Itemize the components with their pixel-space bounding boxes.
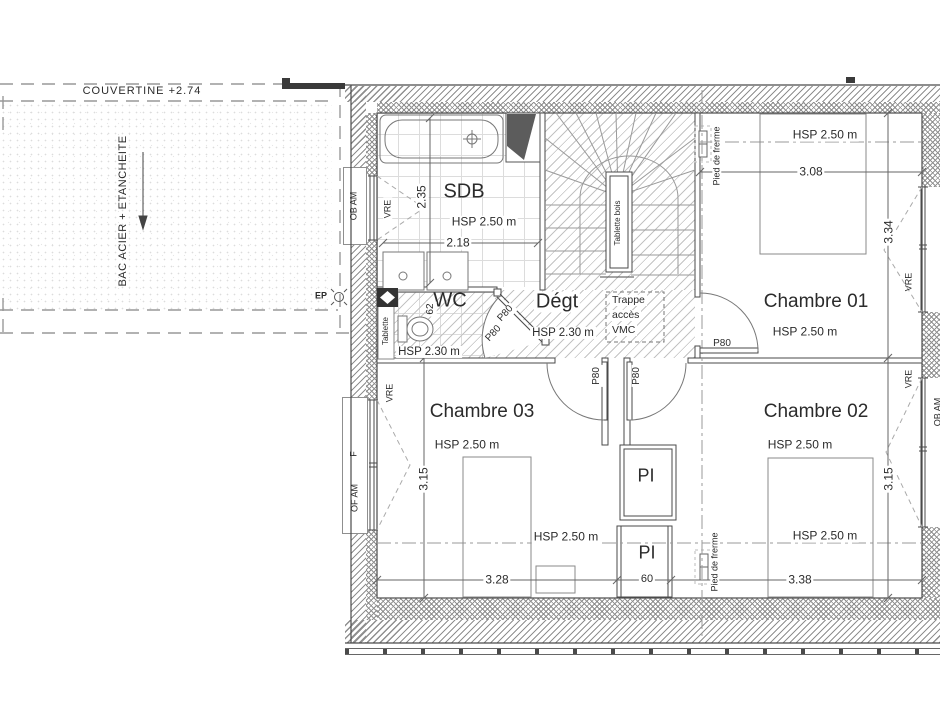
trappe-line1: Trappe [610,295,647,306]
ch02-hsp: HSP 2.50 m [768,439,832,452]
sdb-width-dim: 2.18 [444,237,471,250]
sdb-depth-dim: 2.35 [416,183,429,210]
pied-de-ferme-top: Pied de frerme [712,124,721,187]
ch02-vre-label: VRE [904,370,913,389]
ch03-depth-dim: 3.15 [418,465,431,492]
ch03-vre-label: VRE [385,384,394,403]
pi-upper-label: PI [637,467,654,486]
ch03-width-dim: 3.28 [483,574,510,587]
ep-symbol [331,289,347,305]
roof-area [0,102,332,310]
ch02-width-dim: 3.38 [786,574,813,587]
wall-topright-corner [922,102,940,113]
pi-width-dim: 60 [639,574,655,586]
sdb-name: SDB [443,182,484,203]
ch01-bed-hsp: HSP 2.50 m [791,129,859,142]
ch01-door-label: P80 [713,339,731,350]
degt-hsp: HSP 2.30 m [530,327,596,339]
floor-plan: COUVERTINE +2.74 BAC ACIER + ETANCHEITE … [0,0,940,705]
trappe-line3: VMC [610,325,637,336]
wall-top-insulation [377,102,922,113]
ch03-hsp: HSP 2.50 m [435,439,499,452]
wall-bottom-insulation [377,598,940,620]
ch01-vre-label: VRE [904,273,913,292]
wall-right-insulation-b [922,312,940,378]
wc-hsp: HSP 2.30 m [396,346,462,358]
wall-bottom-hatch [345,620,940,643]
pi-lower-label: PI [638,544,655,563]
window-box-f-of-am [342,397,368,534]
couvertine-label: COUVERTINE +2.74 [83,86,202,98]
ch01-depth-dim: 3.34 [883,218,896,245]
sdb-hsp: HSP 2.50 m [450,216,518,229]
ch03-bed-hsp: HSP 2.50 m [532,531,600,544]
wall-right-insulation-a [922,113,940,187]
ch02-depth-dim: 3.15 [883,465,896,492]
ch01-name: Chambre 01 [764,292,869,312]
ch03-name: Chambre 03 [430,402,535,422]
ch01-width-dim: 3.08 [797,166,824,179]
wall-left-insulation-c [366,530,377,620]
ch01-hsp: HSP 2.50 m [773,326,837,339]
trappe-line2: accès [610,310,641,321]
window-label-f: F [349,451,358,457]
degt-name: Dégt [534,292,580,313]
roof-material-label: BAC ACIER + ETANCHEITE [118,135,130,286]
cladding-line [345,648,940,655]
sdb-vre-label: VRE [383,198,392,221]
wc-dim: 62 [426,301,437,316]
ch02-door-label: P80 [632,365,643,387]
ch02-bed-hsp: HSP 2.50 m [791,530,859,543]
pied-de-ferme-bottom: Pied de frerme [710,530,719,593]
wall-left-insulation-a [366,113,377,176]
window-label-of-am: OF AM [350,484,359,512]
wall-right-insulation-c [922,527,940,598]
ch03-door-label: P80 [592,365,603,387]
ch02-name: Chambre 02 [764,402,869,422]
window-label-ob-am: OB AM [349,192,358,221]
wc-name: WC [433,291,466,312]
stair-tablette-label: Tablette bois [614,201,622,246]
wc-shelf-label: Tablette [382,317,390,345]
degt-floor [495,290,695,358]
wall-left-insulation-b [366,240,377,400]
wall-top-hatch [345,86,940,102]
pied-de-ferme-markers [695,126,711,584]
ep-label: EP [315,291,327,300]
right-edge-window-label: OB AM [933,398,940,427]
